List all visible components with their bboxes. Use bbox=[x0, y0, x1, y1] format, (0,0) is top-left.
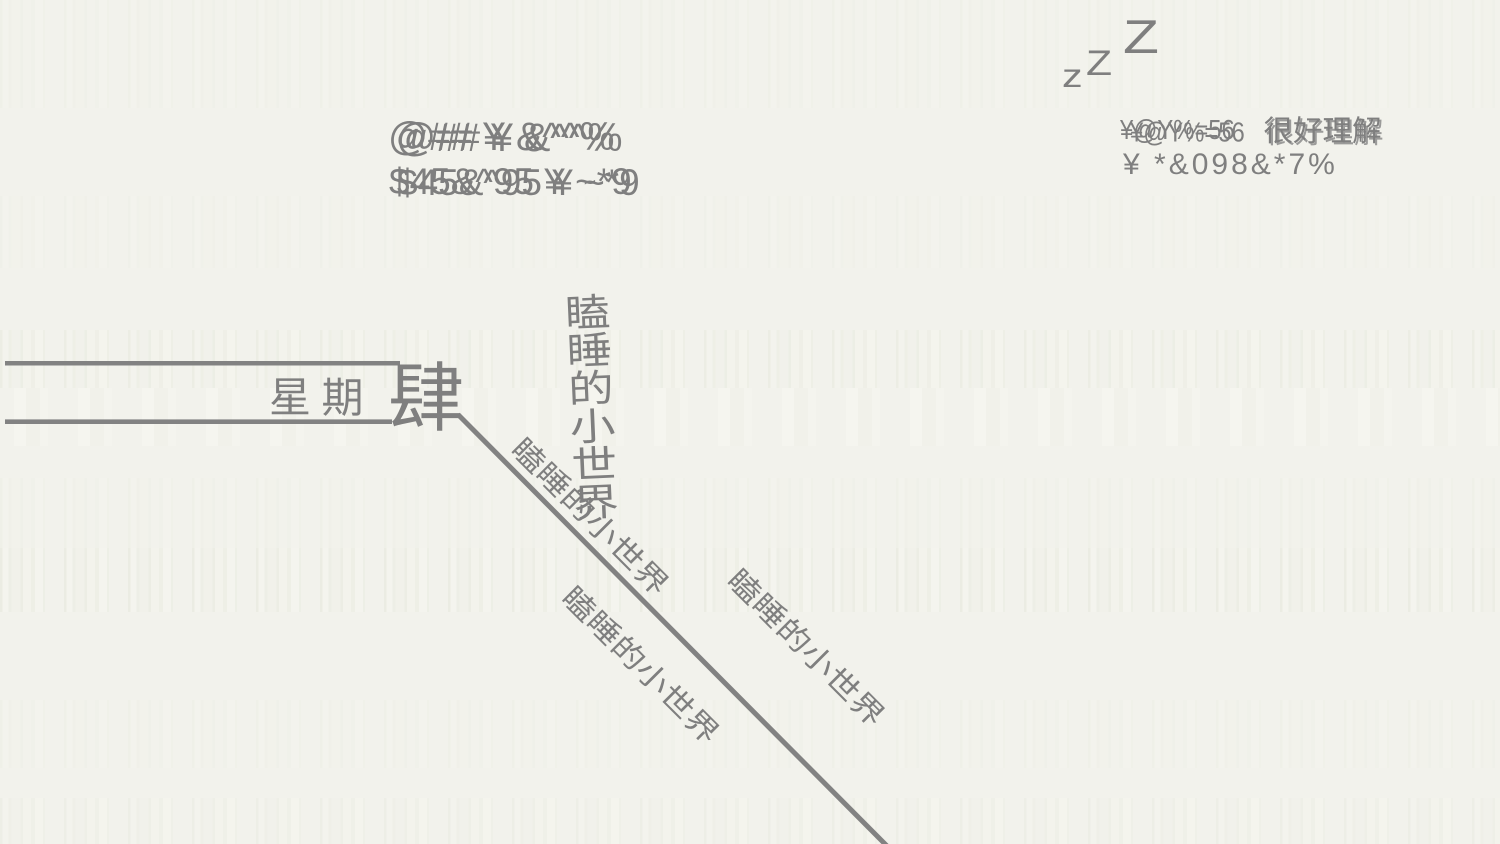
svg-text:@## ¥ &^^%: @## ¥ &^^% bbox=[396, 116, 623, 160]
svg-text:¥ *&098&*7%: ¥ *&098&*7% bbox=[1122, 148, 1338, 181]
svg-text:Z: Z bbox=[1123, 11, 1159, 63]
svg-text:z: z bbox=[1062, 57, 1083, 94]
svg-text:¥@Y%=56: ¥@Y%=56 bbox=[1129, 116, 1245, 148]
svg-text:Z: Z bbox=[1086, 45, 1112, 84]
svg-text:$45&^95 ¥ ~*9: $45&^95 ¥ ~*9 bbox=[397, 162, 640, 203]
